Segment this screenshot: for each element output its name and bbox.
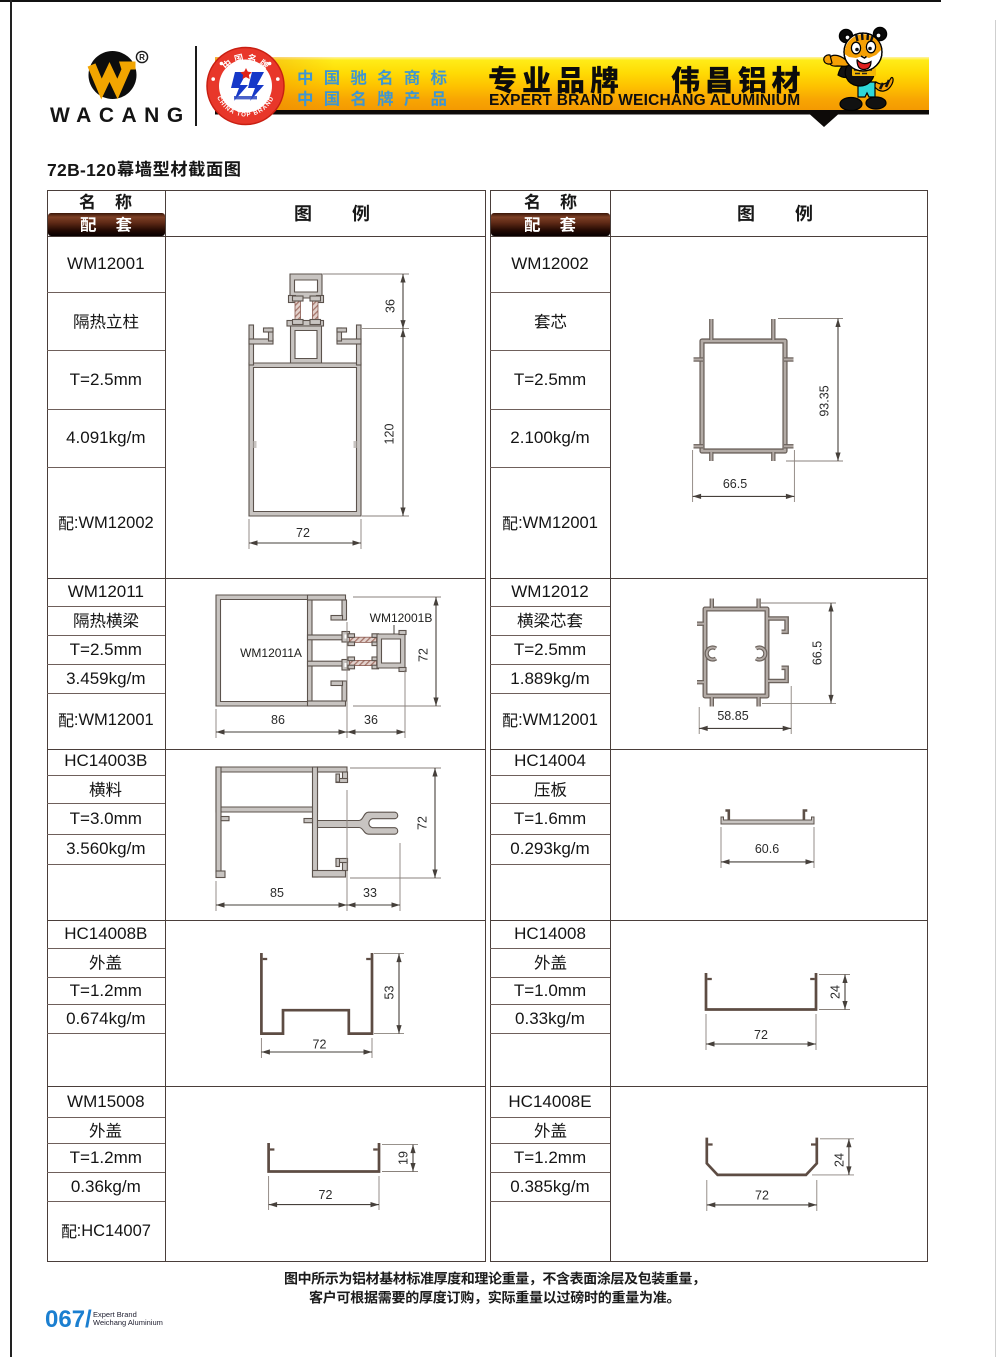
svg-text:72: 72 [416, 648, 430, 662]
svg-text:33: 33 [363, 886, 377, 900]
svg-text:72: 72 [319, 1188, 333, 1202]
svg-text:24: 24 [828, 985, 842, 999]
svg-text:72: 72 [296, 526, 310, 540]
svg-text:72: 72 [755, 1189, 769, 1203]
svg-text:53: 53 [382, 986, 396, 1000]
svg-text:36: 36 [383, 299, 397, 313]
svg-text:36: 36 [364, 713, 378, 727]
svg-text:19: 19 [396, 1151, 410, 1165]
svg-text:86: 86 [271, 713, 285, 727]
svg-text:66.5: 66.5 [810, 641, 824, 665]
svg-text:58.85: 58.85 [717, 709, 748, 723]
svg-text:72: 72 [754, 1028, 768, 1042]
svg-text:66.5: 66.5 [723, 477, 747, 491]
svg-text:85: 85 [270, 886, 284, 900]
svg-text:24: 24 [832, 1153, 846, 1167]
svg-text:93.35: 93.35 [817, 385, 831, 416]
svg-text:60.6: 60.6 [755, 842, 779, 856]
svg-text:WM12011A: WM12011A [240, 646, 302, 660]
svg-text:72: 72 [313, 1038, 327, 1052]
svg-text:120: 120 [382, 424, 396, 445]
svg-text:WM12001B: WM12001B [370, 611, 433, 625]
svg-text:72: 72 [415, 816, 429, 830]
